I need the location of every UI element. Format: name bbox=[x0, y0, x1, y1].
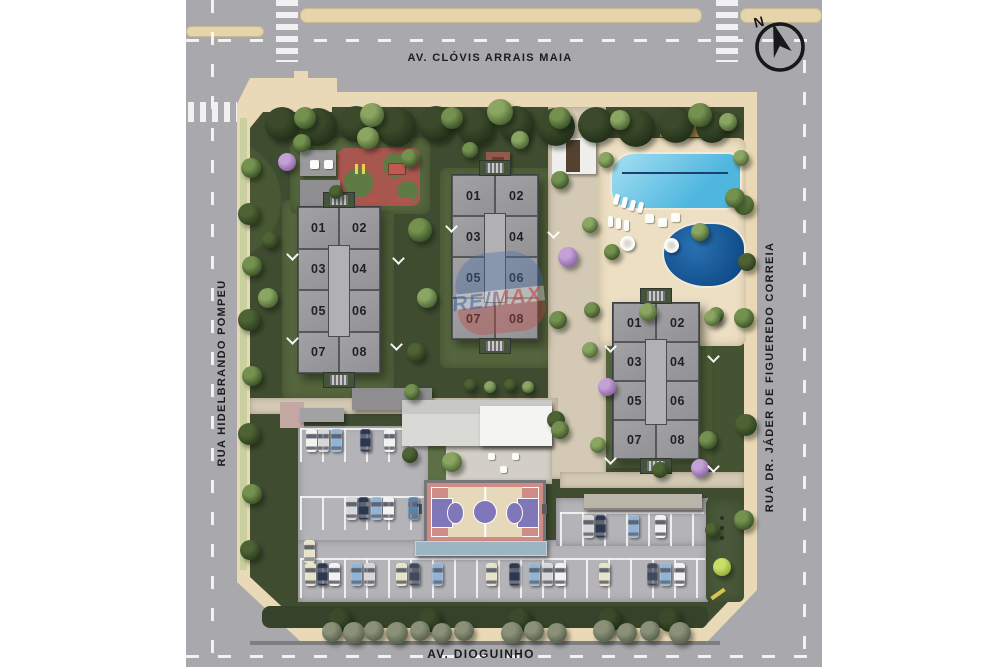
tree bbox=[617, 623, 637, 643]
courtyard-table bbox=[500, 466, 507, 473]
walkway-block3-south bbox=[560, 472, 744, 488]
tree bbox=[549, 311, 567, 329]
parked-car bbox=[346, 497, 357, 520]
parked-car bbox=[599, 563, 610, 586]
parked-car bbox=[396, 563, 407, 586]
tree bbox=[265, 107, 299, 141]
tree bbox=[240, 540, 260, 560]
tree bbox=[454, 621, 474, 641]
parked-car bbox=[358, 497, 369, 520]
tree bbox=[329, 185, 343, 199]
building-block-1: 0102030405060708 bbox=[297, 206, 381, 374]
parked-car bbox=[317, 563, 328, 586]
utility-post bbox=[720, 526, 724, 530]
parked-car bbox=[304, 540, 315, 563]
bike-canopy bbox=[415, 541, 547, 556]
tree bbox=[262, 232, 278, 248]
playground-bench bbox=[394, 198, 412, 202]
court-center-circle bbox=[473, 500, 497, 524]
tree bbox=[462, 142, 478, 158]
parked-car bbox=[329, 563, 340, 586]
parked-car bbox=[595, 515, 606, 538]
unit-02-label: 02 bbox=[656, 303, 699, 342]
flowering-tree bbox=[558, 247, 578, 267]
tree bbox=[464, 379, 476, 391]
tree bbox=[417, 288, 437, 308]
road-median bbox=[300, 8, 702, 23]
parked-car bbox=[486, 563, 497, 586]
tree bbox=[404, 384, 420, 400]
site-plan-canvas: AV. CLÓVIS ARRAIS MAIA AV. DIOGUINHO RUA… bbox=[0, 0, 1000, 667]
entrance-stair-icon bbox=[479, 338, 511, 354]
parked-car bbox=[583, 515, 594, 538]
pool-daybed bbox=[671, 213, 680, 222]
compass-n-label: N bbox=[752, 13, 766, 31]
parked-car bbox=[542, 563, 553, 586]
party-hall-table bbox=[324, 160, 333, 169]
lane-dashes bbox=[211, 0, 214, 667]
tree bbox=[691, 223, 709, 241]
unit-08-label: 08 bbox=[656, 420, 699, 459]
tree bbox=[652, 462, 668, 478]
gate-pillar bbox=[294, 71, 308, 80]
courtyard-table bbox=[512, 453, 519, 460]
tree bbox=[547, 623, 567, 643]
courtyard-table bbox=[488, 453, 495, 460]
parked-car bbox=[529, 563, 540, 586]
tree bbox=[432, 623, 452, 643]
pool-daybed bbox=[645, 214, 654, 223]
pool-lounger bbox=[624, 220, 629, 231]
utility-post bbox=[720, 516, 724, 520]
pool-pavilion-core bbox=[566, 140, 580, 172]
clubhouse-roof-white bbox=[480, 406, 552, 446]
parked-car bbox=[660, 563, 671, 586]
tree bbox=[360, 103, 384, 127]
parking-canopy bbox=[584, 494, 702, 510]
tree bbox=[590, 437, 606, 453]
parked-car bbox=[674, 563, 685, 586]
tree bbox=[408, 218, 432, 242]
tree bbox=[699, 431, 717, 449]
tree bbox=[524, 621, 544, 641]
parked-car bbox=[360, 429, 371, 452]
tree bbox=[604, 244, 620, 260]
tree bbox=[551, 171, 569, 189]
tree bbox=[734, 308, 754, 328]
tree bbox=[238, 309, 260, 331]
pool-lounger bbox=[608, 216, 613, 227]
crosswalk bbox=[188, 102, 237, 122]
tree bbox=[719, 113, 737, 131]
building-block-3: 0102030405060708 bbox=[612, 302, 700, 460]
tree bbox=[640, 621, 660, 641]
parked-car bbox=[432, 563, 443, 586]
curb-shadow bbox=[250, 641, 720, 645]
pool-umbrella bbox=[664, 238, 679, 253]
tree bbox=[598, 152, 614, 168]
road-median bbox=[186, 26, 264, 37]
tree bbox=[733, 150, 749, 166]
tree bbox=[639, 303, 657, 321]
street-label-left: RUA HIDELBRANDO POMPEU bbox=[216, 279, 228, 466]
elevator-core bbox=[328, 245, 350, 337]
parked-car bbox=[331, 429, 342, 452]
tree bbox=[549, 107, 571, 129]
tree bbox=[386, 622, 408, 644]
tree bbox=[410, 621, 430, 641]
tree bbox=[551, 421, 569, 439]
tree bbox=[442, 452, 462, 472]
tree bbox=[501, 622, 523, 644]
street-label-right: RUA DR. JÁDER DE FIGUEREDO CORREIA bbox=[764, 242, 776, 513]
parked-car bbox=[408, 497, 419, 520]
parked-car bbox=[509, 563, 520, 586]
flowering-tree bbox=[691, 459, 709, 477]
canvas-margin-right bbox=[822, 0, 1000, 667]
parked-car bbox=[306, 429, 317, 452]
unit-07-label: 07 bbox=[613, 420, 656, 459]
unit-08-label: 08 bbox=[339, 332, 380, 374]
tree bbox=[713, 558, 731, 576]
entrance-stair-icon bbox=[479, 160, 511, 176]
parked-car bbox=[555, 563, 566, 586]
canvas-margin-left bbox=[0, 0, 186, 667]
tree bbox=[484, 381, 496, 393]
unit-01-label: 01 bbox=[298, 207, 339, 249]
parked-car bbox=[305, 563, 316, 586]
tree bbox=[441, 107, 463, 129]
lane-dashes bbox=[803, 60, 806, 660]
party-hall-table bbox=[310, 160, 319, 169]
parked-car bbox=[655, 515, 666, 538]
crosswalk bbox=[716, 0, 738, 62]
tree bbox=[704, 310, 720, 326]
street-label-bottom: AV. DIOGUINHO bbox=[427, 647, 535, 661]
tree bbox=[734, 510, 754, 530]
flowering-tree bbox=[278, 153, 296, 171]
north-compass: N bbox=[748, 10, 810, 83]
tree bbox=[242, 366, 262, 386]
entrance-stair-icon bbox=[640, 288, 672, 304]
parked-car bbox=[383, 497, 394, 520]
tree bbox=[343, 622, 365, 644]
parked-car bbox=[351, 563, 362, 586]
entrance-stair-icon bbox=[323, 372, 355, 388]
parked-car bbox=[318, 429, 329, 452]
pool-umbrella bbox=[620, 236, 635, 251]
tree bbox=[238, 423, 260, 445]
court-freethrow-left bbox=[447, 502, 464, 525]
tree bbox=[725, 188, 745, 208]
tree bbox=[735, 414, 757, 436]
tree bbox=[593, 620, 615, 642]
tree bbox=[241, 158, 261, 178]
tree bbox=[669, 622, 691, 644]
tree bbox=[584, 302, 600, 318]
tree bbox=[610, 110, 630, 130]
tree bbox=[738, 253, 756, 271]
tree bbox=[688, 103, 712, 127]
flowering-tree bbox=[598, 378, 616, 396]
tree bbox=[238, 203, 260, 225]
pool-daybed bbox=[658, 218, 667, 227]
tree bbox=[522, 381, 534, 393]
tree bbox=[578, 107, 614, 143]
parked-car bbox=[409, 563, 420, 586]
parked-car bbox=[628, 515, 639, 538]
tree bbox=[401, 149, 419, 167]
basketball-hoop bbox=[542, 504, 547, 514]
unit-07-label: 07 bbox=[298, 332, 339, 374]
tree bbox=[242, 484, 262, 504]
playground-equipment bbox=[362, 164, 365, 174]
parked-car bbox=[647, 563, 658, 586]
tree bbox=[402, 447, 418, 463]
unit-02-label: 02 bbox=[339, 207, 380, 249]
parked-car bbox=[371, 497, 382, 520]
utility-post bbox=[720, 536, 724, 540]
parked-car bbox=[364, 563, 375, 586]
parked-car bbox=[384, 429, 395, 452]
basketball-court bbox=[424, 480, 546, 544]
unit-02-label: 02 bbox=[495, 175, 538, 216]
tree bbox=[582, 217, 598, 233]
unit-01-label: 01 bbox=[452, 175, 495, 216]
tree bbox=[242, 256, 262, 276]
playground-bench bbox=[366, 198, 382, 202]
tree bbox=[511, 131, 529, 149]
tree bbox=[294, 107, 316, 129]
tree bbox=[293, 134, 311, 152]
pool-lane-line bbox=[622, 172, 728, 174]
tree bbox=[705, 523, 719, 537]
tree bbox=[364, 621, 384, 641]
elevator-core bbox=[645, 339, 667, 425]
playground-equipment bbox=[355, 164, 358, 174]
garage-roof bbox=[300, 408, 344, 422]
tree bbox=[357, 127, 379, 149]
tree bbox=[504, 379, 516, 391]
tree bbox=[582, 342, 598, 358]
tree bbox=[322, 622, 342, 642]
pool-lounger bbox=[616, 218, 621, 229]
tree bbox=[258, 288, 278, 308]
street-label-top: AV. CLÓVIS ARRAIS MAIA bbox=[407, 52, 572, 64]
tree bbox=[407, 343, 425, 361]
crosswalk bbox=[276, 0, 298, 62]
tree bbox=[487, 99, 513, 125]
